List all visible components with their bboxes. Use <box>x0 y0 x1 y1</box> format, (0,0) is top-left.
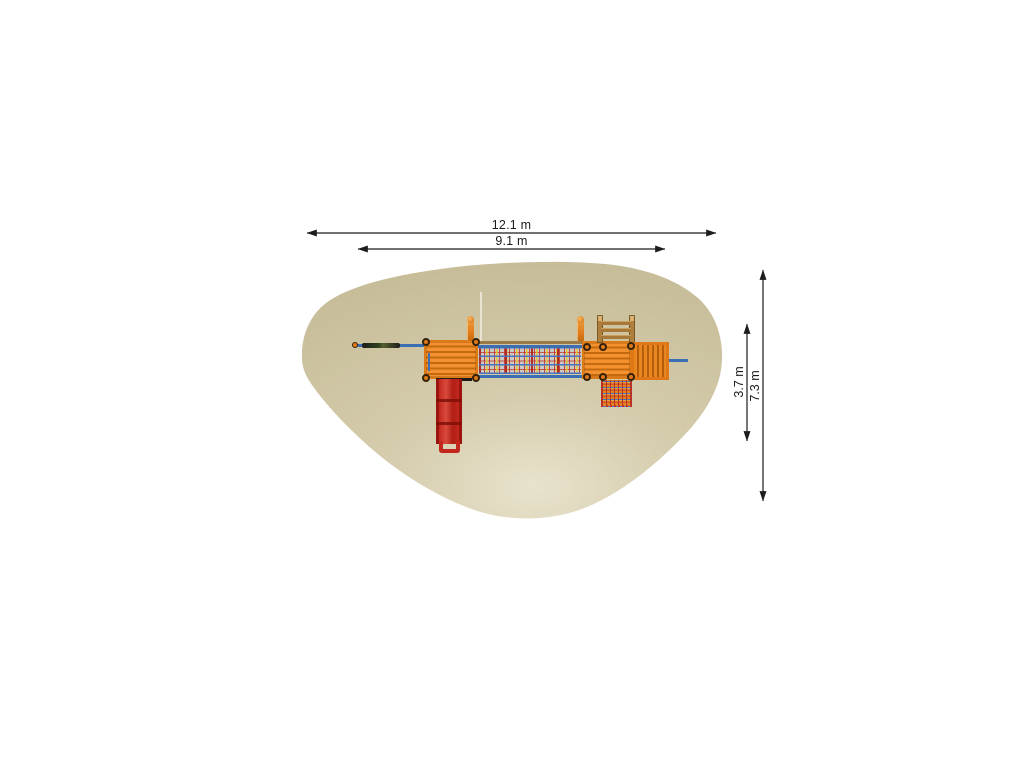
safety-zone-shape <box>302 262 722 519</box>
dimension-label-total-depth: 7.3 m <box>748 370 762 401</box>
bolt <box>472 374 480 382</box>
slide-crossbar <box>436 422 462 425</box>
ladder-rung <box>601 328 631 332</box>
net-bridge <box>479 348 581 374</box>
slide <box>436 379 462 444</box>
bolt <box>352 342 358 348</box>
bolt <box>422 374 430 382</box>
climbing-net <box>601 380 632 407</box>
bolt <box>599 343 607 351</box>
bolt <box>583 343 591 351</box>
bolt <box>627 373 635 381</box>
platform-left-rail-mark <box>428 353 430 371</box>
slide-crossbar <box>436 399 462 402</box>
flagpole <box>480 292 482 342</box>
bolt <box>422 338 430 346</box>
bolt <box>583 373 591 381</box>
ladder-rung <box>601 335 631 339</box>
plan-underlay <box>0 0 1024 768</box>
dimension-label-total-width: 12.1 m <box>306 218 717 232</box>
monkey-bar-grip <box>362 343 400 348</box>
playground-plan-canvas: 12.1 m 9.1 m 3.7 m 7.3 m <box>0 0 1024 768</box>
bolt <box>472 338 480 346</box>
dimension-label-inner-depth: 3.7 m <box>732 366 746 397</box>
ladder-rung <box>601 321 631 325</box>
bolt <box>627 342 635 350</box>
finial-post-left-knob <box>467 316 474 323</box>
platform-left <box>424 340 478 379</box>
dimension-label-inner-width: 9.1 m <box>357 234 666 248</box>
bolt <box>599 373 607 381</box>
climbing-ramp <box>631 342 669 380</box>
slide-exit <box>439 441 460 453</box>
finial-post-right-knob <box>577 316 584 323</box>
